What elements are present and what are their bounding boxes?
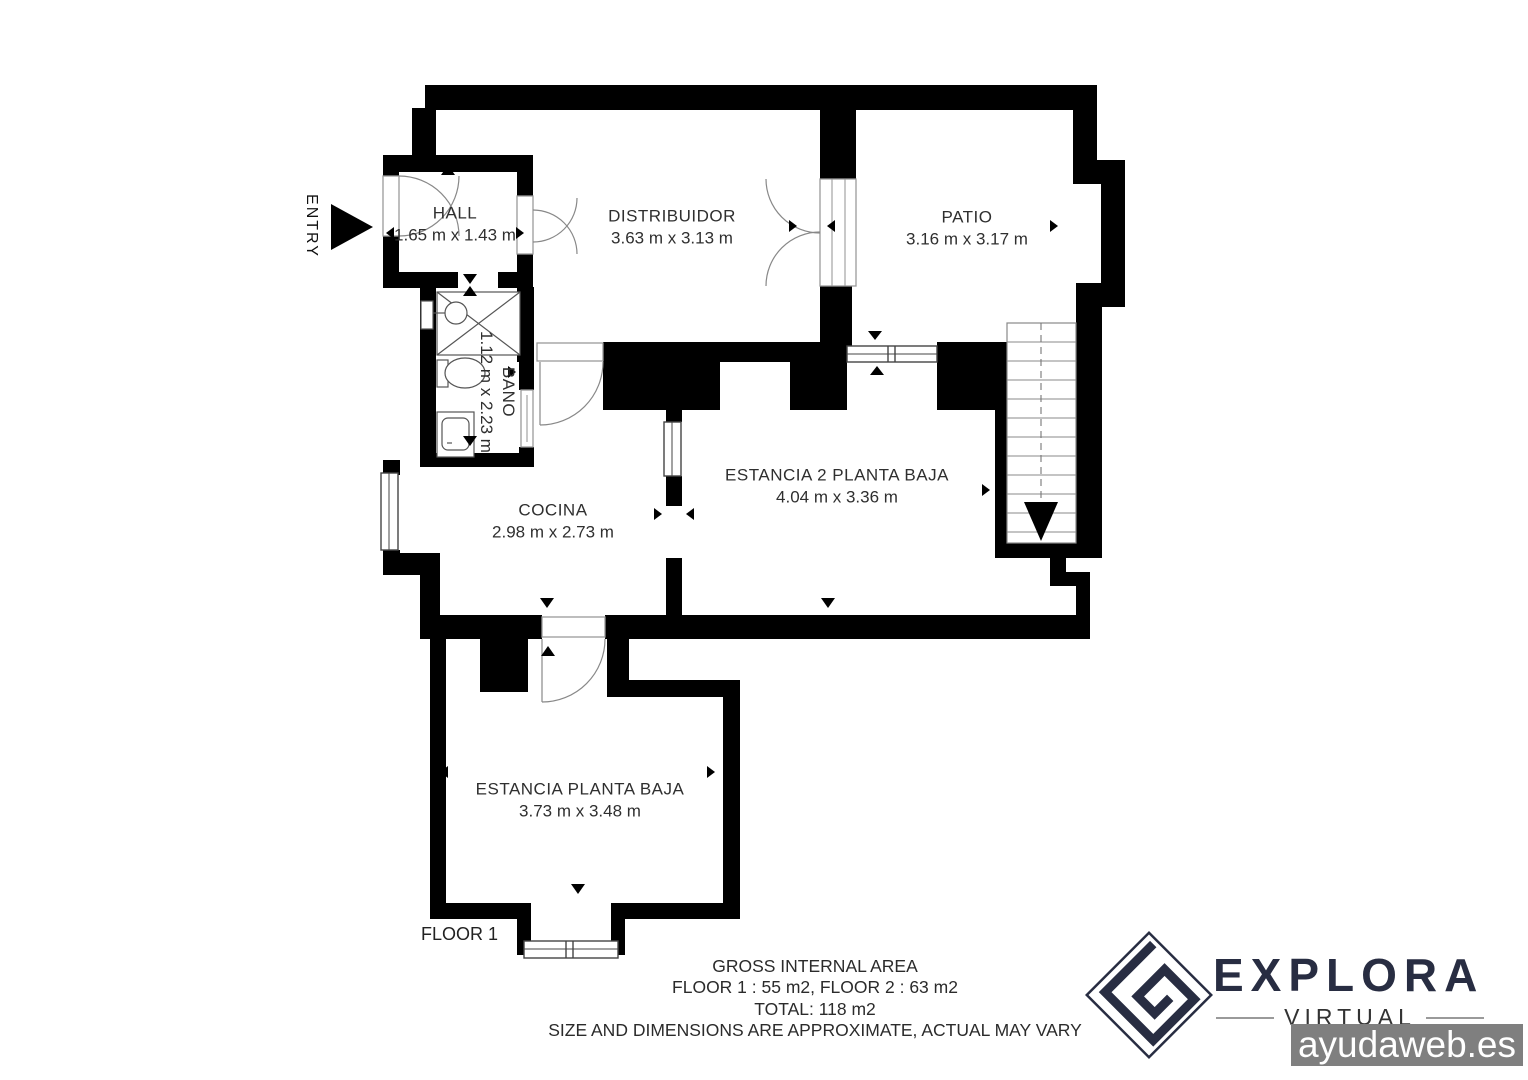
marker-down-icon [821, 598, 835, 608]
total-area: TOTAL: 118 m2 [548, 999, 1082, 1020]
room-dims: 3.73 m x 3.48 m [476, 800, 685, 822]
gross-area-title: GROSS INTERNAL AREA [548, 956, 1082, 977]
room-dims: 3.63 m x 3.13 m [608, 227, 736, 249]
logo-diamond-icon [1087, 933, 1211, 1057]
marker-left-icon [686, 508, 694, 520]
tagline-rule-left [1216, 1017, 1274, 1019]
marker-right-icon [1050, 220, 1058, 232]
room-label-estancia2: ESTANCIA 2 PLANTA BAJA 4.04 m x 3.36 m [725, 464, 949, 508]
marker-right-icon [654, 508, 662, 520]
room-label-hall: HALL 1.65 m x 1.43 m [394, 202, 516, 246]
room-name: ESTANCIA 2 PLANTA BAJA [725, 464, 949, 486]
room-label-distribuidor: DISTRIBUIDOR 3.63 m x 3.13 m [608, 205, 736, 249]
room-name: COCINA [492, 499, 614, 521]
floorplan-drawing [0, 0, 1528, 1080]
room-name: HALL [394, 202, 516, 224]
marker-up-icon [463, 286, 477, 296]
marker-down-icon [868, 331, 882, 340]
room-dims: 4.04 m x 3.36 m [725, 486, 949, 508]
marker-right-icon [789, 220, 797, 232]
washbasin-fixture [437, 412, 474, 457]
room-label-patio: PATIO 3.16 m x 3.17 m [906, 206, 1028, 250]
floor-areas: FLOOR 1 : 55 m2, FLOOR 2 : 63 m2 [548, 977, 1082, 998]
room-dims: 1.12 m x 2.23 m [475, 331, 497, 453]
room-name: DISTRIBUIDOR [608, 205, 736, 227]
marker-down-icon [540, 598, 554, 608]
brand-name: EXPLORA [1213, 948, 1484, 1002]
staircase [1007, 323, 1076, 543]
marker-down-icon [571, 884, 585, 894]
room-name: ESTANCIA PLANTA BAJA [476, 778, 685, 800]
floorplan-page: ENTRY HALL 1.65 m x 1.43 m DISTRIBUIDOR … [0, 0, 1528, 1080]
marker-up-icon [541, 646, 555, 656]
room-label-cocina: COCINA 2.98 m x 2.73 m [492, 499, 614, 543]
room-label-estancia: ESTANCIA PLANTA BAJA 3.73 m x 3.48 m [476, 778, 685, 822]
disclaimer: SIZE AND DIMENSIONS ARE APPROXIMATE, ACT… [548, 1020, 1082, 1041]
floor-label: FLOOR 1 [421, 924, 498, 945]
marker-up-icon [870, 366, 884, 375]
entry-label: ENTRY [302, 194, 320, 258]
room-name: BANO [497, 331, 519, 453]
marker-right-icon [707, 766, 715, 778]
room-dims: 2.98 m x 2.73 m [492, 521, 614, 543]
room-name: PATIO [906, 206, 1028, 228]
marker-down-icon [463, 274, 477, 284]
gross-area-note: GROSS INTERNAL AREA FLOOR 1 : 55 m2, FLO… [548, 956, 1082, 1041]
watermark: ayudaweb.es [1291, 1024, 1523, 1066]
room-dims: 3.16 m x 3.17 m [906, 228, 1028, 250]
tagline-rule-right [1426, 1017, 1484, 1019]
entry-arrow-icon [331, 204, 373, 250]
room-dims: 1.65 m x 1.43 m [394, 224, 516, 246]
room-label-bano: BANO 1.12 m x 2.23 m [475, 331, 519, 453]
marker-right-icon [982, 484, 990, 496]
